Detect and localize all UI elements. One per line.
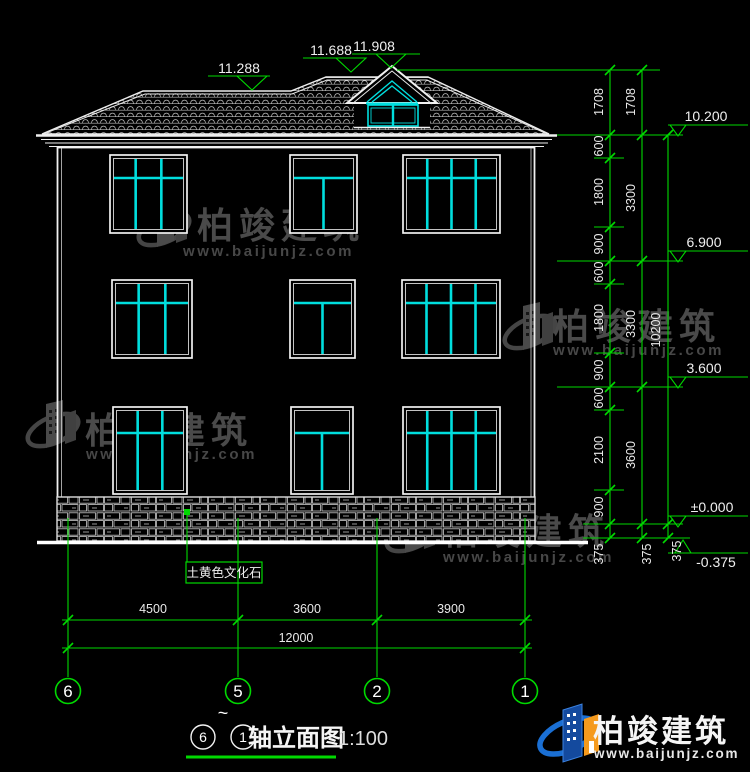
windows bbox=[110, 155, 500, 494]
dim-3600: 3600 bbox=[293, 602, 321, 616]
title-text: 轴立面图 bbox=[248, 724, 344, 752]
svg-text:600: 600 bbox=[592, 136, 606, 157]
top-elevation-2: 11.688 bbox=[310, 42, 352, 58]
title-scale: 1:100 bbox=[338, 728, 388, 750]
svg-text:10200: 10200 bbox=[649, 313, 663, 348]
window-type-b bbox=[290, 155, 357, 233]
dim-3900: 3900 bbox=[437, 602, 465, 616]
axis-number-1: 1 bbox=[520, 682, 529, 701]
brand-url: www.baijunjz.com bbox=[593, 746, 739, 761]
elevation-drawing: 柏竣建筑 www.baijunjz.com 柏竣建筑 www.baijunjz.… bbox=[0, 0, 750, 772]
window-type-a bbox=[112, 280, 192, 358]
top-elevation-3: 11.908 bbox=[353, 38, 395, 54]
title-tilde: ~ bbox=[218, 703, 229, 723]
level-0000: ±0.000 bbox=[691, 499, 734, 515]
svg-text:3300: 3300 bbox=[624, 184, 638, 212]
dim-12000: 12000 bbox=[279, 631, 314, 645]
svg-text:600: 600 bbox=[592, 262, 606, 283]
svg-text:3600: 3600 bbox=[624, 441, 638, 469]
svg-text:600: 600 bbox=[592, 388, 606, 409]
window-type-a bbox=[110, 155, 187, 233]
dim-4500: 4500 bbox=[139, 602, 167, 616]
svg-text:1800: 1800 bbox=[592, 304, 606, 332]
window-type-c bbox=[403, 155, 500, 233]
level-minus-0375: -0.375 bbox=[696, 554, 736, 570]
level-10200: 10.200 bbox=[685, 108, 728, 124]
window-type-b bbox=[291, 407, 353, 494]
svg-text:375: 375 bbox=[670, 541, 684, 562]
window-type-b bbox=[290, 280, 355, 358]
axis-number-5: 5 bbox=[233, 682, 242, 701]
title-axis-from: 6 bbox=[199, 729, 207, 745]
window-type-c bbox=[402, 280, 500, 358]
svg-text:900: 900 bbox=[592, 360, 606, 381]
watermark-url-text: www.baijunjz.com bbox=[552, 342, 724, 359]
level-3600: 3.600 bbox=[686, 360, 721, 376]
svg-text:1708: 1708 bbox=[592, 88, 606, 116]
svg-text:900: 900 bbox=[592, 234, 606, 255]
window-type-c bbox=[403, 407, 500, 494]
stone-plinth bbox=[57, 497, 535, 541]
svg-text:1800: 1800 bbox=[592, 178, 606, 206]
window-type-a bbox=[113, 407, 187, 494]
logo-building-blue bbox=[563, 704, 582, 762]
svg-text:375: 375 bbox=[592, 544, 606, 565]
level-6900: 6.900 bbox=[686, 234, 721, 250]
axis-number-2: 2 bbox=[372, 682, 381, 701]
brand-name: 柏竣建筑 bbox=[593, 714, 729, 749]
material-label: 土黄色文化石 bbox=[186, 565, 261, 580]
watermark-url-text: www.baijunjz.com bbox=[182, 243, 354, 260]
svg-text:375: 375 bbox=[640, 544, 654, 565]
watermark-url-text: www.baijunjz.com bbox=[442, 549, 614, 566]
top-elevation-1: 11.288 bbox=[218, 60, 260, 76]
svg-text:3300: 3300 bbox=[624, 310, 638, 338]
svg-text:900: 900 bbox=[592, 497, 606, 518]
axis-number-6: 6 bbox=[63, 682, 72, 701]
title-axis-to: 1 bbox=[239, 729, 247, 745]
svg-text:2100: 2100 bbox=[592, 436, 606, 464]
svg-text:1708: 1708 bbox=[624, 88, 638, 116]
